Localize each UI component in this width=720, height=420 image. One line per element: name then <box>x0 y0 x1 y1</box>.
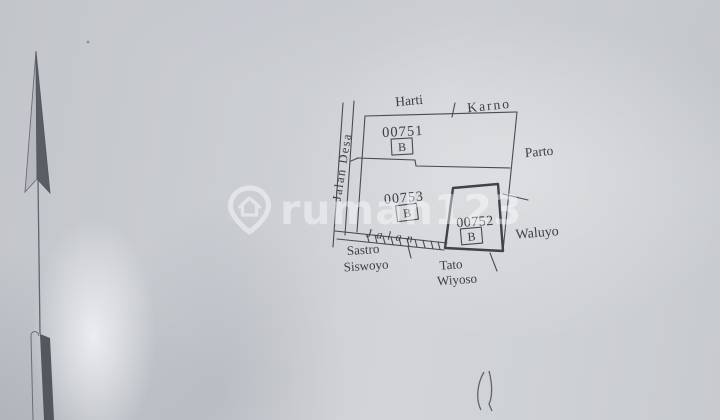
parcel-00751: 00751 B <box>382 123 424 155</box>
parcel-class-code: B <box>402 206 412 221</box>
neighbor-sastro: Sastro <box>346 241 379 258</box>
north-arrow-icon <box>25 41 89 420</box>
neighbor-labels: Harti Karno Parto Waluyo Sastro Siswoyo … <box>343 92 559 289</box>
parcel-00753: 00753 B <box>383 189 424 221</box>
left-road-label: Jalan Desa <box>330 132 355 202</box>
neighbor-waluyo: Waluyo <box>515 224 559 243</box>
parcel-class-code: B <box>398 140 407 154</box>
scanned-plot-sketch-photo: 00751 B 00753 B 00752 B Jalan Desa Jalan… <box>0 0 720 420</box>
plot-sketch-drawing: 00751 B 00753 B 00752 B Jalan Desa Jalan… <box>0 0 720 420</box>
pen-squiggle-mark <box>478 371 492 411</box>
parcel-class-code: B <box>467 229 476 244</box>
neighbor-harti: Harti <box>395 92 424 109</box>
neighbor-siswoyo: Siswoyo <box>343 256 389 274</box>
neighbor-parto: Parto <box>524 143 554 160</box>
neighbor-wiyoso: Wiyoso <box>437 271 478 289</box>
parcel-00752: 00752 B <box>456 214 494 245</box>
neighbor-tato: Tato <box>439 256 463 273</box>
